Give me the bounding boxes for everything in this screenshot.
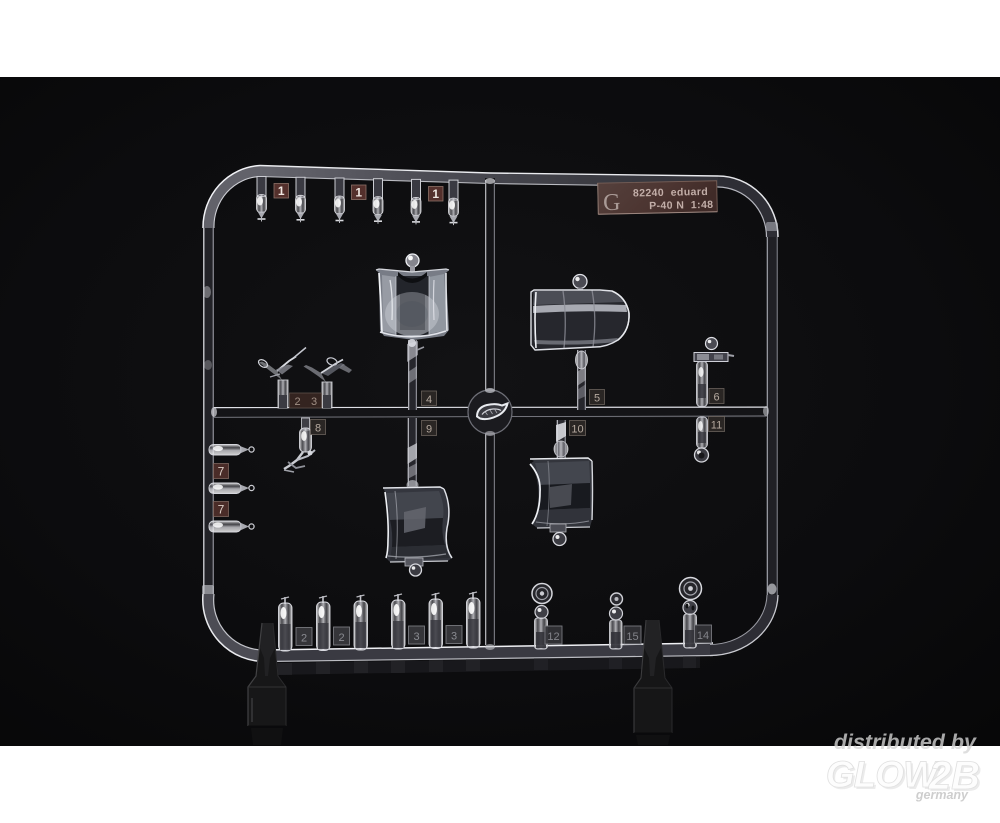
svg-text:11: 11 — [711, 420, 722, 432]
svg-text:8: 8 — [315, 423, 321, 435]
svg-text:3: 3 — [451, 631, 457, 643]
svg-text:14: 14 — [697, 630, 709, 642]
svg-text:2: 2 — [294, 396, 300, 408]
svg-text:2: 2 — [338, 632, 344, 644]
svg-text:1: 1 — [355, 186, 362, 200]
svg-text:7: 7 — [218, 465, 225, 479]
svg-text:4: 4 — [426, 394, 432, 406]
svg-text:9: 9 — [426, 424, 432, 436]
svg-text:6: 6 — [713, 392, 719, 404]
svg-text:1: 1 — [432, 187, 439, 201]
svg-text:G: G — [603, 190, 621, 216]
svg-text:germany: germany — [915, 788, 969, 802]
svg-text:7: 7 — [218, 503, 225, 517]
svg-text:3: 3 — [413, 631, 419, 643]
svg-text:10: 10 — [571, 424, 583, 436]
svg-text:2: 2 — [301, 633, 307, 645]
svg-text:1: 1 — [278, 184, 285, 198]
svg-text:3: 3 — [311, 396, 317, 408]
svg-text:P-40 N 1:48: P-40 N 1:48 — [649, 199, 714, 212]
svg-text:5: 5 — [594, 393, 600, 405]
svg-text:82240 eduard: 82240 eduard — [633, 186, 708, 200]
svg-text:12: 12 — [547, 631, 559, 643]
svg-text:15: 15 — [626, 631, 638, 643]
